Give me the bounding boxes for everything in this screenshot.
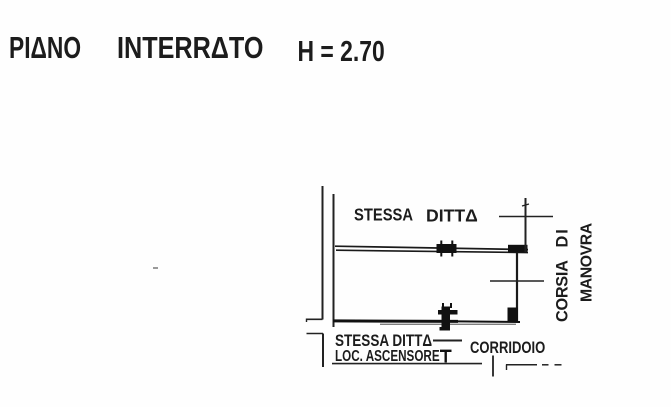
svg-text:LOC. ASCENSORE: LOC. ASCENSORE	[335, 346, 440, 364]
svg-text:DITTΔ: DITTΔ	[426, 205, 478, 225]
svg-text:DI: DI	[554, 227, 572, 247]
svg-text:INTERRΔTO: INTERRΔTO	[117, 29, 263, 64]
svg-text:STESSA: STESSA	[354, 205, 413, 225]
svg-text:MANOVRA: MANOVRA	[579, 223, 596, 302]
svg-text:H = 2.70: H = 2.70	[298, 34, 385, 67]
svg-text:CORSIA: CORSIA	[554, 260, 572, 322]
svg-text:PIΔNO: PIΔNO	[9, 30, 81, 65]
svg-text:CORRIDOIO: CORRIDOIO	[470, 340, 545, 358]
